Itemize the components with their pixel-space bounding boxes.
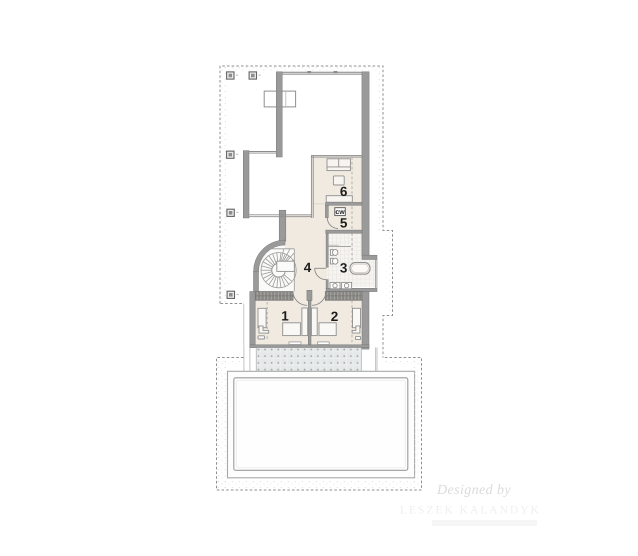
svg-text:LESZEK KALANDYK: LESZEK KALANDYK <box>400 505 541 517</box>
svg-text:1: 1 <box>281 309 289 324</box>
svg-text:4: 4 <box>304 260 312 275</box>
svg-text:2: 2 <box>331 309 339 324</box>
svg-text:3: 3 <box>340 260 348 275</box>
svg-text:Designed by: Designed by <box>436 483 511 498</box>
svg-text:5: 5 <box>340 216 348 231</box>
svg-text:6: 6 <box>340 184 348 199</box>
